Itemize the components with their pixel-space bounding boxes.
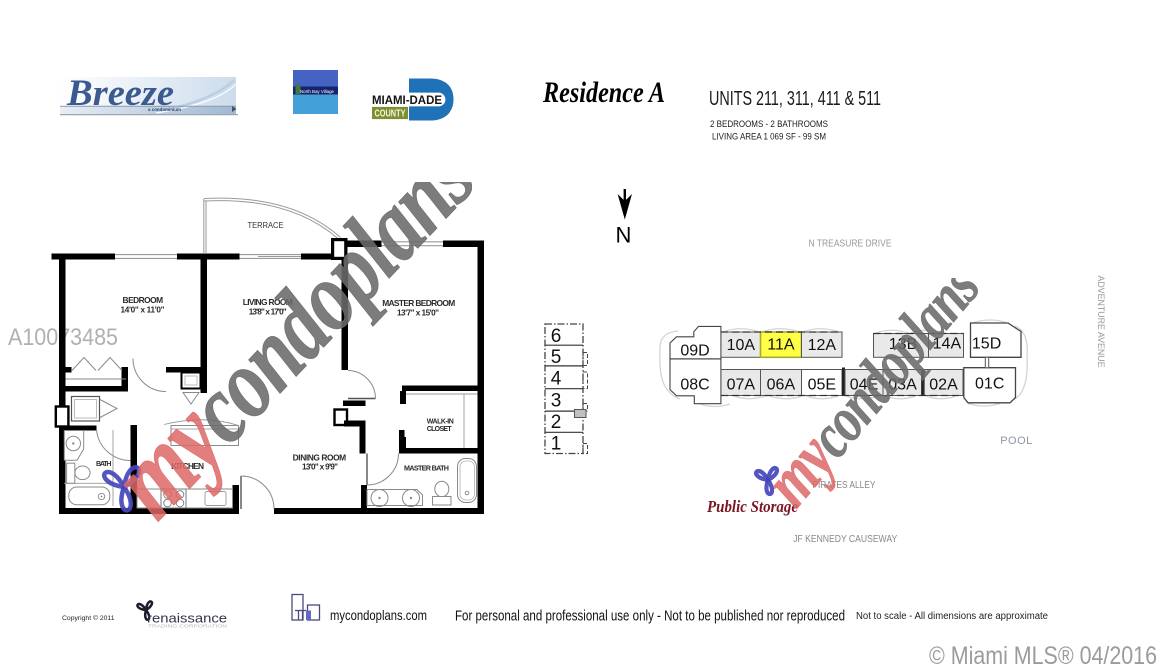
svg-text:3: 3 <box>551 391 562 412</box>
svg-text:Copyright © 2011: Copyright © 2011 <box>62 614 115 622</box>
svg-text:1: 1 <box>551 434 562 455</box>
svg-text:TERRACE: TERRACE <box>248 221 284 230</box>
svg-text:5: 5 <box>551 347 562 368</box>
svg-text:12A: 12A <box>808 337 837 354</box>
svg-text:JF KENNEDY CAUSEWAY: JF KENNEDY CAUSEWAY <box>793 533 897 545</box>
svg-text:02A: 02A <box>929 377 958 394</box>
svg-text:Residence A: Residence A <box>542 76 665 109</box>
svg-text:For personal and professional: For personal and professional use only -… <box>455 609 845 625</box>
svg-text:CLOSET: CLOSET <box>427 426 453 433</box>
svg-text:4: 4 <box>551 369 562 390</box>
svg-text:North Bay Village: North Bay Village <box>300 89 334 94</box>
svg-text:BATH: BATH <box>96 461 112 468</box>
svg-text:2: 2 <box>551 412 562 433</box>
svg-text:N TREASURE DRIVE: N TREASURE DRIVE <box>809 239 892 250</box>
svg-text:MIAMI-DADE: MIAMI-DADE <box>372 95 442 107</box>
svg-text:mycondoplans.com: mycondoplans.com <box>330 607 427 623</box>
svg-text:ADVENTURE AVENUE: ADVENTURE AVENUE <box>1095 276 1106 368</box>
svg-text:13'7" x 15'0": 13'7" x 15'0" <box>397 309 439 318</box>
svg-text:N: N <box>616 223 632 248</box>
svg-text:COUNTY: COUNTY <box>375 109 406 120</box>
svg-text:MASTER BATH: MASTER BATH <box>404 464 449 473</box>
svg-text:LIVING AREA 1 069 SF - 99 SM: LIVING AREA 1 069 SF - 99 SM <box>712 131 826 141</box>
svg-text:DINING ROOM: DINING ROOM <box>293 453 347 463</box>
svg-text:2 BEDROOMS - 2 BATHROOMS: 2 BEDROOMS - 2 BATHROOMS <box>710 119 828 129</box>
svg-text:15D: 15D <box>972 336 1001 353</box>
svg-text:07A: 07A <box>727 377 756 394</box>
svg-text:TRADING CORPORATION: TRADING CORPORATION <box>148 624 227 629</box>
svg-text:POOL: POOL <box>1000 435 1033 447</box>
svg-text:13'0" x 9'9": 13'0" x 9'9" <box>302 463 338 472</box>
svg-text:10A: 10A <box>727 337 756 354</box>
svg-text:WALK-IN: WALK-IN <box>427 419 454 426</box>
svg-text:6: 6 <box>551 326 562 347</box>
svg-text:09D: 09D <box>680 343 709 360</box>
svg-text:08C: 08C <box>680 377 709 394</box>
svg-text:BEDROOM: BEDROOM <box>123 295 164 305</box>
svg-text:11A: 11A <box>767 337 795 354</box>
svg-text:06A: 06A <box>767 377 796 394</box>
svg-text:14'0" x 11'0": 14'0" x 11'0" <box>121 306 165 315</box>
svg-text:01C: 01C <box>975 376 1004 393</box>
svg-text:© Miami MLS® 04/2016: © Miami MLS® 04/2016 <box>929 642 1157 670</box>
svg-text:Not to scale - All dimensions: Not to scale - All dimensions are approx… <box>856 611 1048 622</box>
svg-text:UNITS 211, 311, 411 & 511: UNITS 211, 311, 411 & 511 <box>709 87 881 110</box>
svg-text:a condominium: a condominium <box>148 107 181 113</box>
